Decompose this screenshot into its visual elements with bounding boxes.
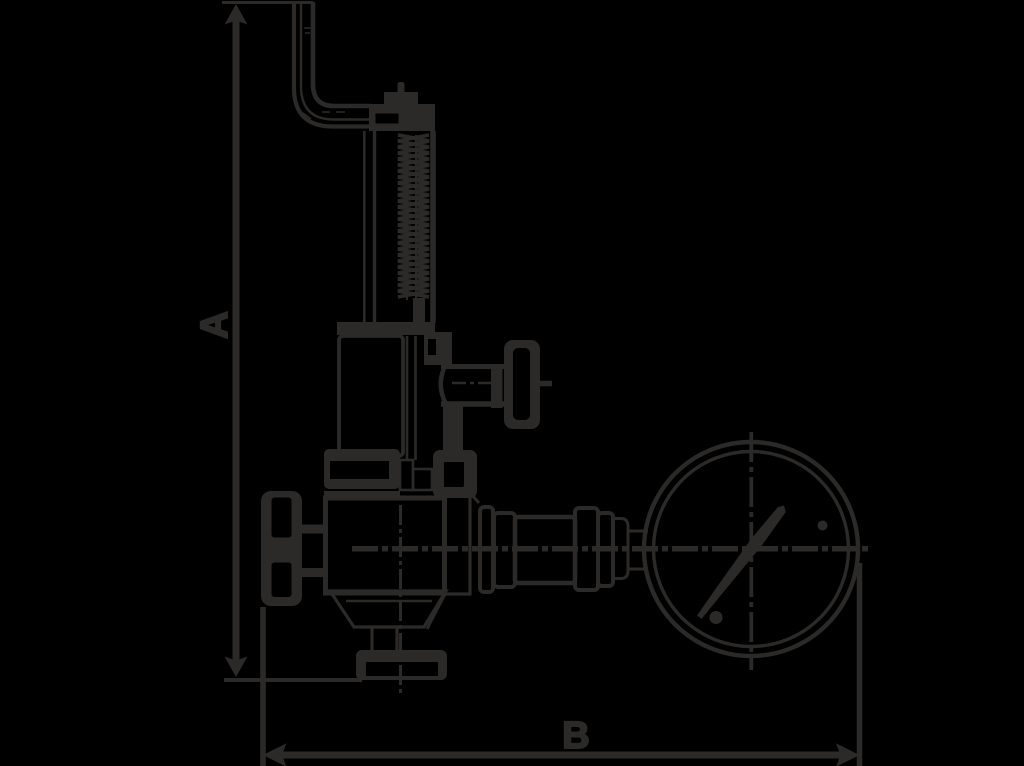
svg-text:A: A <box>194 311 236 338</box>
svg-text:B: B <box>562 715 589 757</box>
